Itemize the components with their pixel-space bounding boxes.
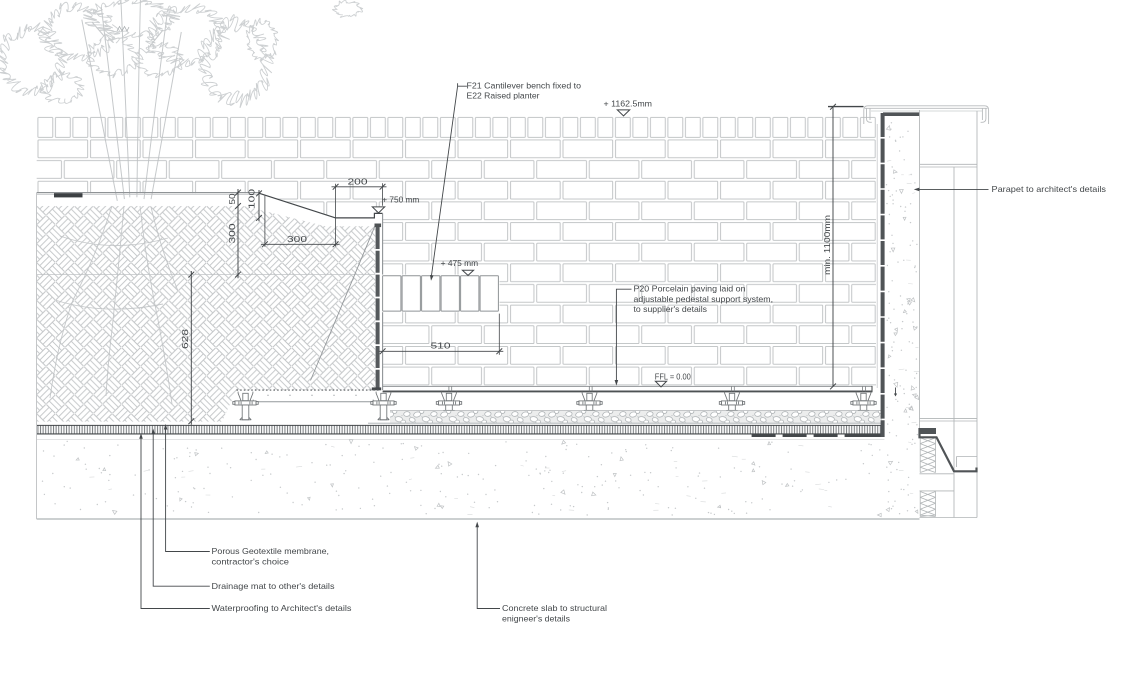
svg-text:300: 300: [228, 222, 237, 243]
svg-text:Parapet to architect's details: Parapet to architect's details: [992, 185, 1107, 194]
svg-text:Drainage mat to other's detail: Drainage mat to other's details: [212, 582, 335, 591]
svg-text:contractor's choice: contractor's choice: [212, 557, 290, 566]
svg-text:Waterproofing to Architect's d: Waterproofing to Architect's details: [212, 604, 352, 613]
svg-text:100: 100: [248, 188, 257, 209]
svg-text:+ 475 mm: + 475 mm: [441, 259, 479, 268]
svg-text:enigneer's details: enigneer's details: [502, 614, 570, 623]
svg-text:+ 750 mm: + 750 mm: [382, 196, 419, 205]
svg-text:Concrete slab to structural: Concrete slab to structural: [502, 604, 607, 613]
svg-text:E22 Raised planter: E22 Raised planter: [467, 92, 540, 101]
svg-text:50: 50: [228, 193, 237, 205]
svg-text:200: 200: [348, 177, 369, 186]
svg-text:P20 Porcelain paving laid on: P20 Porcelain paving laid on: [634, 285, 746, 294]
svg-text:628: 628: [181, 329, 190, 349]
svg-text:300: 300: [287, 235, 308, 244]
svg-text:510: 510: [431, 342, 452, 351]
svg-text:min. 1100mm: min. 1100mm: [823, 215, 832, 275]
svg-text:FFL = 0.00: FFL = 0.00: [655, 372, 691, 381]
svg-text:F21 Cantilever bench fixed to: F21 Cantilever bench fixed to: [467, 81, 582, 90]
svg-text:adjustable pedestal support sy: adjustable pedestal support system,: [634, 295, 774, 304]
svg-text:to supplier's details: to supplier's details: [634, 305, 708, 314]
svg-text:Porous Geotextile membrane,: Porous Geotextile membrane,: [212, 547, 330, 556]
svg-text:+ 1162.5mm: + 1162.5mm: [604, 99, 653, 108]
